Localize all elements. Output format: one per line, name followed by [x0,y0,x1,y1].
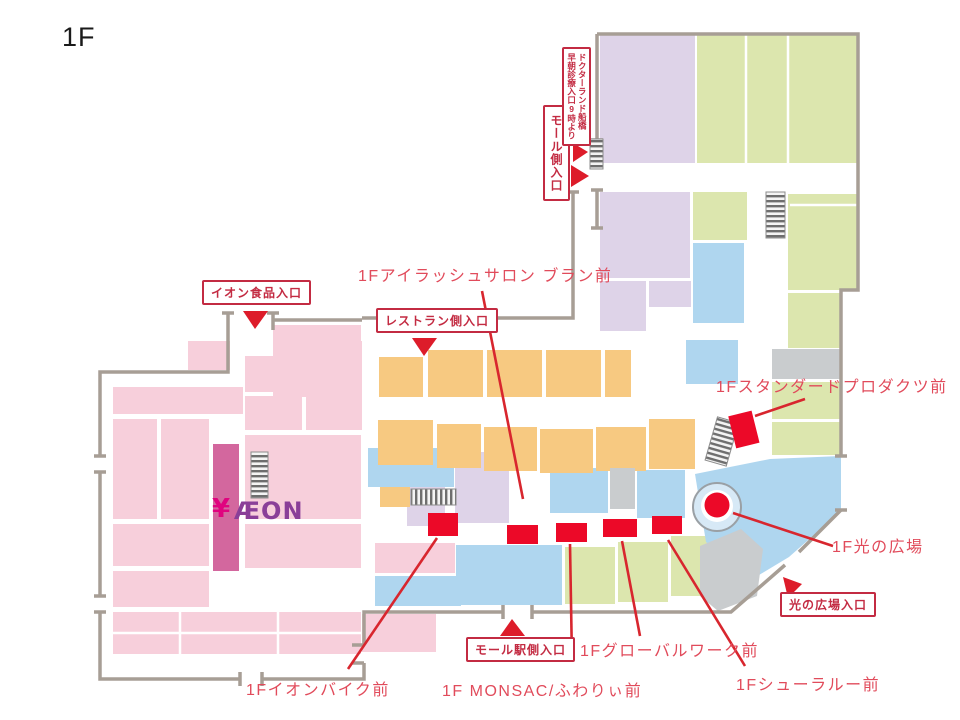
arrow-mall-station-icon [500,619,525,636]
arrow-doctor-land-icon [573,143,588,162]
entrance-label-hikari-plaza: 光の広場入口 [780,592,876,617]
label-eyelash-salon: 1Fアイラッシュサロン ブラン前 [358,262,612,286]
label-monsac: 1F MONSAC/ふわりぃ前 [442,677,642,701]
floor-title: 1F [62,22,96,53]
label-ion-bike: 1Fイオンバイク前 [246,676,390,700]
entrance-label-doctor-land-line1: ドクターランド船橋 [577,53,588,140]
label-standard-products: 1Fスタンダードプロダクツ前 [716,373,948,397]
escalator-icon [251,452,268,498]
escalator-icon [411,489,456,505]
light-plaza-marker[interactable] [693,483,741,531]
escalator-icon [590,139,603,169]
label-global-work: 1Fグローバルワーク前 [580,637,759,661]
marker-global-work[interactable] [603,519,637,537]
marker-surrale[interactable] [652,516,682,534]
aeon-logo: ÆON [234,497,304,525]
entrance-label-doctor-land-line2: 早朝診療入口9時より [566,53,577,140]
entrance-label-restaurant-side: レストラン側入口 [376,308,498,333]
arrow-mall-side-icon [571,165,589,187]
marker-ion-bike[interactable] [428,513,458,536]
label-surrale: 1Fシューラルー前 [736,671,880,695]
entrance-label-doctor-land: ドクターランド船橋 早朝診療入口9時より [562,47,591,146]
escalator-icon [766,192,785,238]
mall-floor-map: 1F 1Fアイラッシュサロン ブラン前 1Fスタンダードプロダクツ前 1F光の広… [0,0,960,720]
marker-monsac[interactable] [556,523,587,542]
yen-icon: ¥ [212,494,230,524]
entrance-label-ion-food: イオン食品入口 [202,280,311,305]
label-hikari-plaza: 1F光の広場 [832,533,924,557]
marker-monsac-left[interactable] [507,525,538,544]
entrance-label-mall-station: モール駅側入口 [466,637,575,662]
arrow-ion-food-icon [243,311,268,329]
